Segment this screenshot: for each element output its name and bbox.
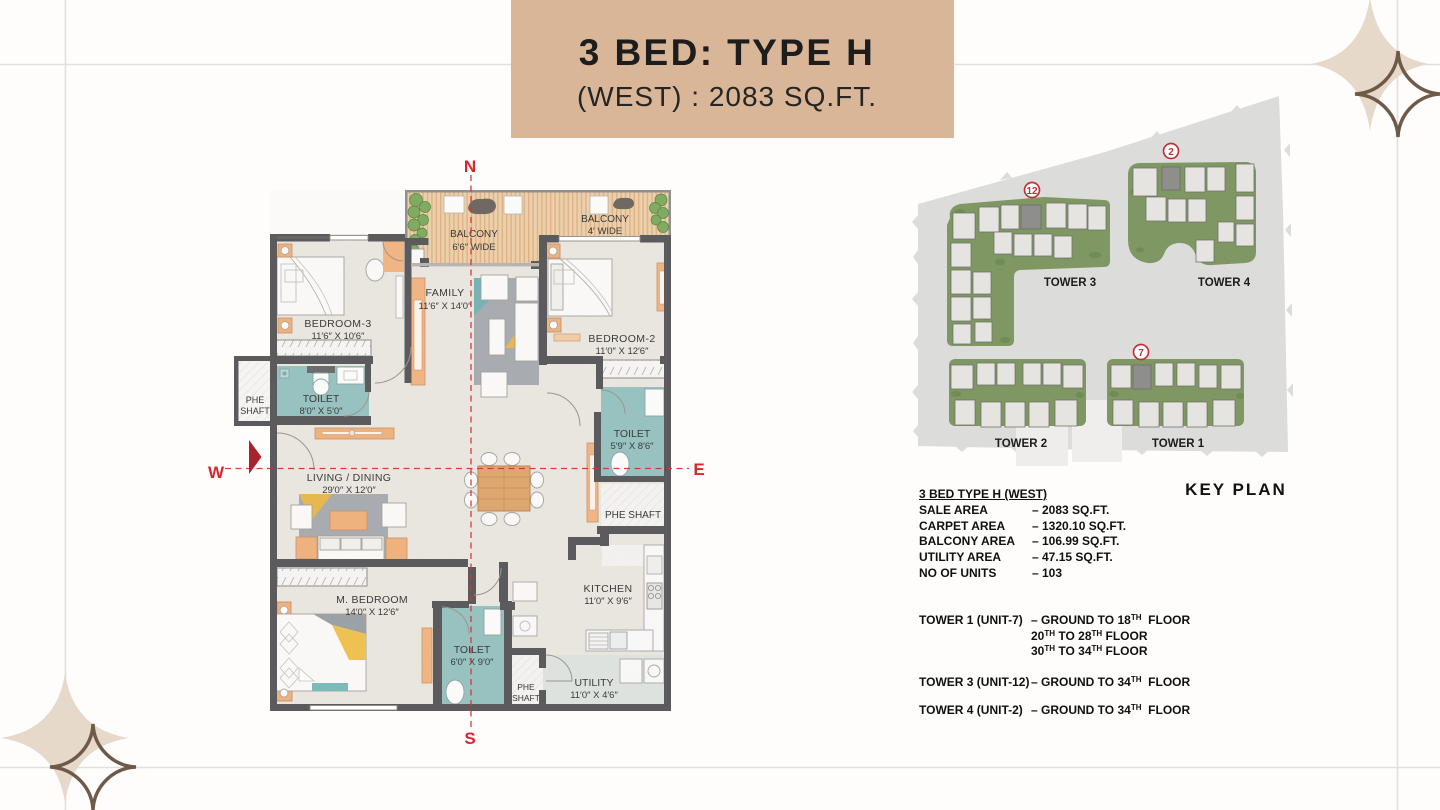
svg-text:29′0″ X 12′0″: 29′0″ X 12′0″ — [322, 485, 376, 496]
svg-text:BALCONY: BALCONY — [581, 214, 629, 225]
svg-text:PHE: PHE — [517, 682, 535, 692]
svg-text:5′9″ X 8′6″: 5′9″ X 8′6″ — [610, 441, 654, 452]
svg-text:N: N — [464, 157, 476, 176]
svg-text:3 BED: TYPE H: 3 BED: TYPE H — [579, 32, 875, 73]
svg-text:11′6″ X 14′0″: 11′6″ X 14′0″ — [419, 301, 473, 312]
svg-text:11′0″ X 9′6″: 11′0″ X 9′6″ — [584, 596, 632, 607]
svg-text:TOILET: TOILET — [614, 428, 651, 440]
svg-text:FAMILY: FAMILY — [426, 287, 465, 299]
svg-text:TOWER 4: TOWER 4 — [1198, 277, 1251, 289]
svg-text:TOWER 3: TOWER 3 — [1044, 277, 1096, 289]
svg-text:12: 12 — [1026, 186, 1038, 197]
svg-text:BALCONY: BALCONY — [450, 229, 498, 240]
svg-text:6′6″ WIDE: 6′6″ WIDE — [452, 242, 495, 253]
svg-text:14′0″ X 12′6″: 14′0″ X 12′6″ — [345, 607, 399, 618]
svg-text:8′0″ X 5′0″: 8′0″ X 5′0″ — [299, 406, 343, 417]
svg-text:SHAFT: SHAFT — [240, 406, 270, 416]
svg-text:11′0″ X 4′6″: 11′0″ X 4′6″ — [570, 690, 618, 701]
svg-text:2: 2 — [1168, 147, 1174, 158]
svg-text:LIVING / DINING: LIVING / DINING — [307, 472, 391, 484]
svg-text:E: E — [693, 460, 704, 479]
svg-text:BEDROOM-2: BEDROOM-2 — [588, 333, 655, 345]
svg-text:TOILET: TOILET — [454, 644, 491, 656]
svg-text:TOILET: TOILET — [303, 393, 340, 405]
svg-text:TOWER 1: TOWER 1 — [1152, 438, 1205, 450]
svg-text:7: 7 — [1138, 348, 1144, 359]
svg-text:W: W — [208, 463, 225, 482]
svg-text:6′0″ X 9′0″: 6′0″ X 9′0″ — [450, 657, 494, 668]
svg-text:11′0″ X 12′6″: 11′0″ X 12′6″ — [596, 346, 650, 357]
svg-text:KITCHEN: KITCHEN — [584, 583, 633, 595]
svg-text:TOWER 2: TOWER 2 — [995, 438, 1047, 450]
svg-text:BEDROOM-3: BEDROOM-3 — [304, 318, 371, 330]
svg-text:(WEST) : 2083 SQ.FT.: (WEST) : 2083 SQ.FT. — [577, 81, 877, 112]
svg-text:PHE: PHE — [246, 395, 265, 405]
svg-text:SHAFT: SHAFT — [512, 693, 540, 703]
svg-text:PHE SHAFT: PHE SHAFT — [605, 510, 661, 521]
svg-text:UTILITY: UTILITY — [574, 677, 613, 689]
svg-text:M. BEDROOM: M. BEDROOM — [336, 594, 408, 606]
svg-text:S: S — [464, 729, 475, 748]
svg-text:4′ WIDE: 4′ WIDE — [588, 226, 623, 237]
svg-text:11′6″ X 10′6″: 11′6″ X 10′6″ — [312, 331, 366, 342]
